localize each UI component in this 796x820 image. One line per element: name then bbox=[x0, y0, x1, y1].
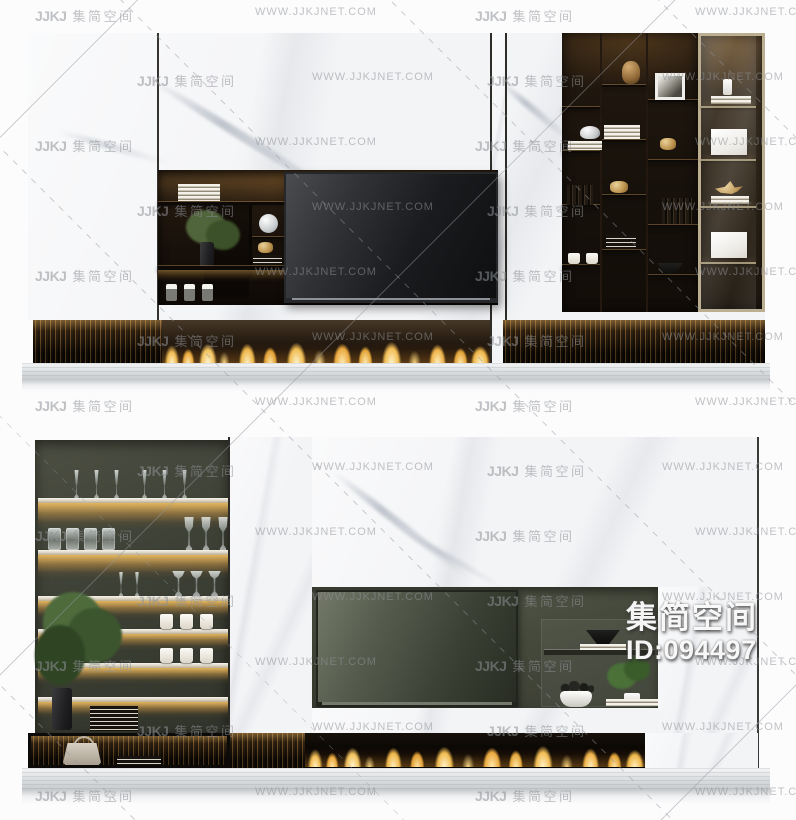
slat-panel bbox=[503, 320, 765, 363]
id-badge-brand: 集简空间 bbox=[626, 601, 758, 635]
tv bbox=[284, 172, 498, 303]
display-recess bbox=[158, 170, 498, 305]
marble-column bbox=[228, 437, 315, 733]
decor-books bbox=[90, 706, 138, 731]
bar-shelving-wall bbox=[35, 440, 228, 733]
champagne-flute bbox=[92, 470, 101, 498]
decor-books bbox=[606, 699, 658, 706]
shelf-light bbox=[158, 270, 284, 282]
shelf bbox=[648, 100, 698, 102]
website-watermark: WWW.JJKJNET.COM bbox=[695, 396, 796, 408]
decor-books bbox=[568, 141, 602, 150]
decor-vase bbox=[52, 688, 72, 730]
shelf bbox=[648, 160, 698, 162]
decor-glass-jar bbox=[184, 284, 195, 301]
glass-cabinet bbox=[698, 33, 765, 312]
champagne-flute bbox=[140, 470, 149, 498]
shelf bbox=[602, 195, 646, 197]
tumbler-glass bbox=[66, 528, 79, 550]
white-cup bbox=[180, 614, 193, 629]
website-watermark: WWW.JJKJNET.COM bbox=[255, 6, 377, 18]
decor-art-frame bbox=[655, 73, 685, 100]
decor-gold-ornament bbox=[660, 138, 676, 150]
wine-glass bbox=[183, 517, 195, 550]
fireplace-flames bbox=[162, 337, 490, 363]
fireplace-flames bbox=[305, 743, 645, 767]
shelf bbox=[602, 140, 646, 142]
decor-pedestal-bowl bbox=[560, 691, 592, 707]
marble-panel bbox=[645, 733, 758, 768]
champagne-flute bbox=[72, 470, 81, 498]
display-shelving bbox=[562, 33, 698, 312]
brand-watermark: JJKJ集简空间 bbox=[475, 396, 574, 415]
shelf bbox=[562, 151, 600, 153]
decor-glass-jar bbox=[202, 284, 213, 301]
tv-bottom-bar bbox=[292, 298, 490, 300]
wine-glass bbox=[200, 517, 212, 550]
tumbler-glass bbox=[102, 528, 115, 550]
decor-books bbox=[567, 185, 593, 205]
shelf-divider bbox=[646, 33, 648, 312]
decor-books bbox=[253, 255, 282, 266]
decor-cup bbox=[586, 253, 598, 264]
shelf-light bbox=[38, 503, 228, 529]
shelf bbox=[602, 85, 646, 87]
cabinet-glass-door bbox=[701, 36, 756, 309]
tv-bottom-bar bbox=[322, 702, 512, 705]
decor-books bbox=[604, 125, 640, 139]
slat-panel bbox=[230, 733, 305, 768]
decor-bowl bbox=[580, 126, 600, 139]
decor-books bbox=[178, 184, 220, 201]
shelf bbox=[648, 275, 698, 277]
floor-shadow bbox=[22, 379, 770, 392]
shelf-divider bbox=[600, 33, 602, 312]
decor-plant bbox=[35, 625, 85, 685]
id-badge: 集简空间 ID:094497 bbox=[626, 601, 758, 665]
website-watermark: WWW.JJKJNET.COM bbox=[255, 396, 377, 408]
white-cup bbox=[180, 648, 193, 663]
white-cup bbox=[200, 648, 213, 663]
decor-cup bbox=[568, 253, 580, 264]
decor-vase bbox=[200, 242, 214, 267]
white-cup bbox=[200, 614, 213, 629]
decor-bowl bbox=[657, 263, 683, 274]
brand-watermark: JJKJ集简空间 bbox=[35, 396, 134, 415]
champagne-flute bbox=[112, 470, 121, 498]
shelf bbox=[648, 225, 698, 227]
handbag bbox=[63, 743, 101, 765]
recess-shelf bbox=[252, 237, 284, 239]
decor-vase bbox=[259, 214, 278, 233]
decor-gold-ornament bbox=[610, 181, 628, 193]
base-plinth bbox=[22, 363, 770, 379]
screenshot-root: JJKJ集简空间WWW.JJKJNET.COMJJKJ集简空间WWW.JJKJN… bbox=[0, 0, 796, 820]
champagne-flute bbox=[160, 470, 169, 498]
decor-books bbox=[117, 756, 161, 765]
shelf bbox=[602, 250, 646, 252]
decor-glass-jar bbox=[166, 284, 177, 301]
fireplace bbox=[305, 733, 645, 768]
white-cup bbox=[160, 648, 173, 663]
decor-books bbox=[606, 235, 636, 249]
tv bbox=[316, 590, 518, 707]
base-plinth bbox=[22, 768, 770, 789]
tv-screen bbox=[286, 174, 496, 298]
slat-panel bbox=[33, 320, 162, 363]
champagne-flute bbox=[180, 470, 189, 498]
tv-recess bbox=[312, 587, 658, 708]
decor-bowl bbox=[586, 630, 620, 644]
shelf bbox=[562, 265, 600, 267]
brand-watermark: JJKJ集简空间 bbox=[35, 6, 134, 25]
id-badge-number: ID:094497 bbox=[626, 635, 758, 665]
floor-shadow bbox=[22, 789, 770, 804]
decor-books bbox=[662, 198, 692, 224]
tumbler-glass bbox=[48, 528, 61, 550]
top-tv-wall bbox=[28, 33, 765, 393]
tumbler-glass bbox=[84, 528, 97, 550]
marble-lower-band bbox=[312, 708, 658, 733]
website-watermark: WWW.JJKJNET.COM bbox=[695, 6, 796, 18]
brand-watermark: JJKJ集简空间 bbox=[475, 6, 574, 25]
decor-gold-ornament bbox=[258, 242, 273, 253]
counter-niche bbox=[28, 733, 230, 768]
tv-screen bbox=[318, 592, 516, 702]
fireplace bbox=[162, 320, 490, 363]
shelf bbox=[562, 107, 600, 109]
shelf bbox=[562, 205, 600, 207]
decor-bronze-vase bbox=[622, 61, 640, 84]
white-cup bbox=[160, 614, 173, 629]
